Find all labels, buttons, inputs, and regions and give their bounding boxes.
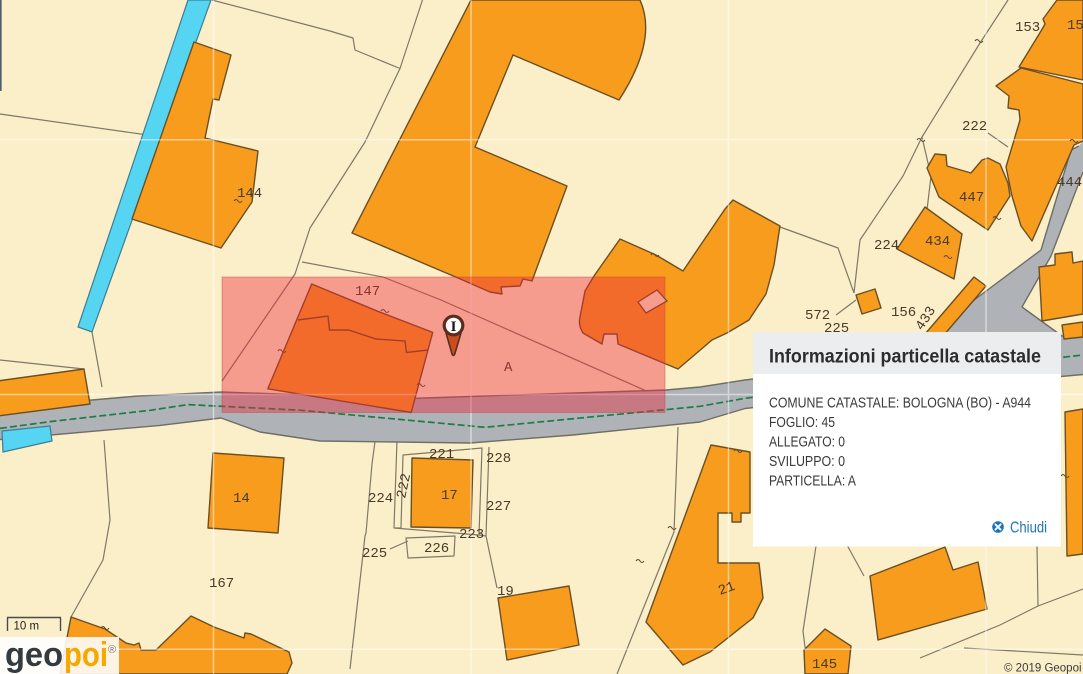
svg-text:167: 167 [209,576,234,592]
svg-text:10 m: 10 m [14,621,40,633]
svg-text:225: 225 [362,546,387,562]
svg-text:poi: poi [64,636,108,674]
svg-text:447: 447 [959,190,984,206]
svg-text:Chiudi: Chiudi [1010,520,1047,537]
svg-text:®: ® [108,644,116,656]
svg-text:434: 434 [925,234,950,250]
svg-text:17: 17 [441,488,458,504]
svg-text:144: 144 [237,186,262,202]
svg-text:227: 227 [486,499,511,515]
svg-text:19: 19 [497,584,514,600]
svg-text:224: 224 [368,491,393,507]
svg-text:14: 14 [233,491,250,507]
svg-text:228: 228 [486,451,511,467]
svg-text:226: 226 [424,541,449,557]
svg-text:222: 222 [962,119,987,135]
svg-text:221: 221 [429,447,454,463]
svg-text:145: 145 [812,657,837,673]
svg-text:Informazioni particella catast: Informazioni particella catastale [769,347,1041,368]
svg-text:SVILUPPO: 0: SVILUPPO: 0 [769,453,845,470]
svg-text:444: 444 [1057,175,1082,191]
svg-text:COMUNE CATASTALE: BOLOGNA (BO): COMUNE CATASTALE: BOLOGNA (BO) - A944 [769,395,1031,412]
svg-text:geo: geo [5,636,63,674]
svg-text:154: 154 [1067,18,1083,34]
svg-text:ALLEGATO: 0: ALLEGATO: 0 [769,434,845,451]
svg-text:153: 153 [1015,20,1040,36]
svg-text:223: 223 [459,527,484,543]
svg-text:PARTICELLA: A: PARTICELLA: A [769,473,857,490]
svg-text:© 2019 Geopoi: © 2019 Geopoi [1004,663,1082,674]
svg-text:I: I [451,319,457,335]
svg-text:FOGLIO: 45: FOGLIO: 45 [769,414,835,431]
svg-text:224: 224 [874,238,899,254]
svg-text:156: 156 [891,305,916,321]
